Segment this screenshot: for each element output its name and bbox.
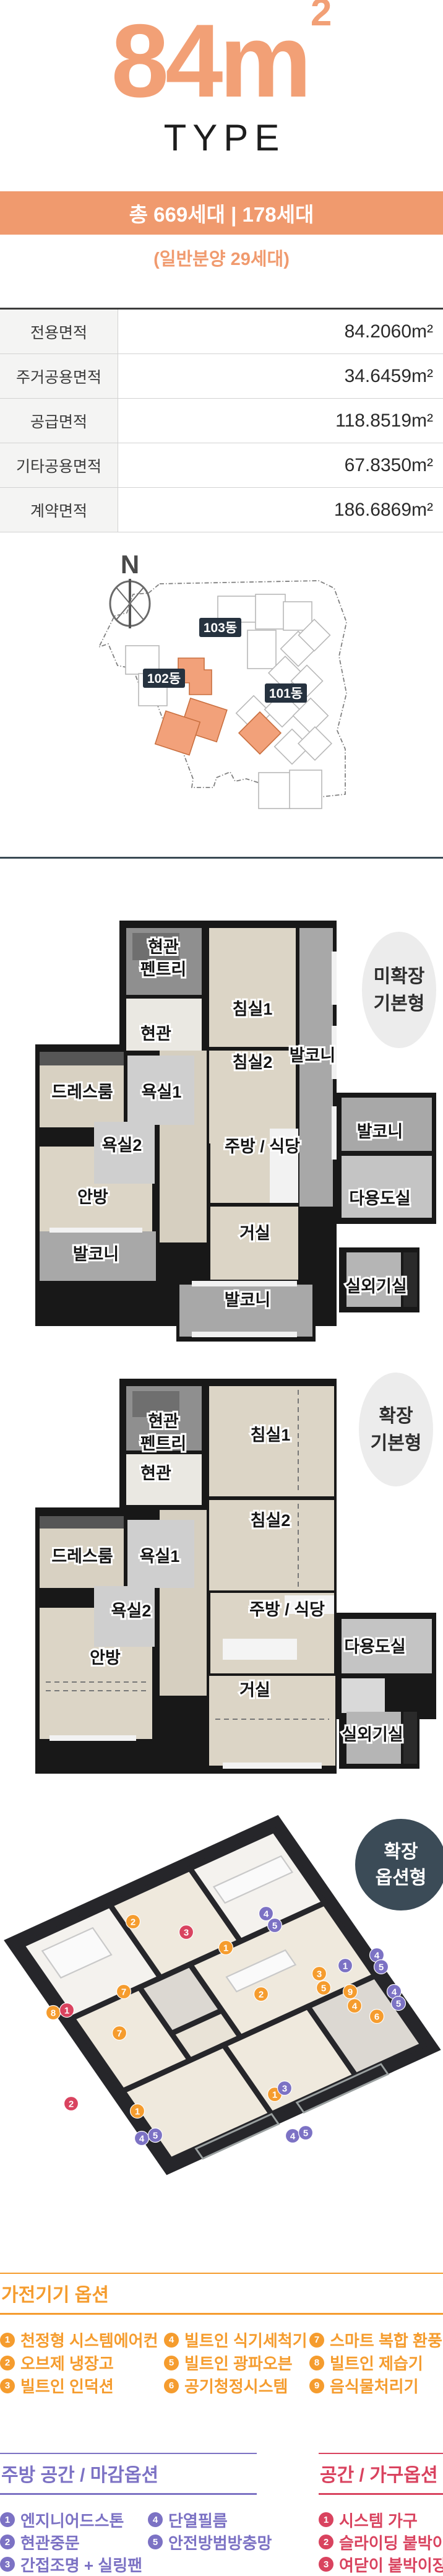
units-summary-text: 총 669세대 | 178세대 (129, 198, 314, 228)
room-label: 욕실1 (140, 1547, 180, 1566)
legend-item-label: 시스템 가구 (339, 2509, 418, 2531)
svg-text:4: 4 (374, 1951, 380, 1961)
option-marker-appliance: 3 (312, 1967, 327, 1981)
svg-text:101동: 101동 (269, 687, 303, 701)
room-label: 침실2 (251, 1511, 291, 1530)
svg-text:확장: 확장 (384, 1842, 418, 1862)
area-superscript: 2 (311, 0, 332, 34)
svg-text:4: 4 (392, 1987, 397, 1998)
option-marker-kitchen: 5 (392, 1997, 406, 2011)
svg-text:1: 1 (343, 1961, 348, 1972)
svg-text:5: 5 (272, 1921, 277, 1932)
room-label: 발코니 (290, 1046, 336, 1065)
room-label: 욕실1 (142, 1083, 182, 1101)
legend-item: 2현관중문 (0, 2531, 148, 2553)
area-row-value: 186.6869m² (118, 488, 443, 532)
area-table-row: 계약면적186.6869m² (0, 488, 443, 532)
legend-item-number: 3 (0, 2379, 15, 2393)
room-label: 펜트리 (140, 960, 187, 979)
legend-item-label: 음식물처리기 (330, 2374, 419, 2397)
legend-item: 5빌트인 광파오븐 (164, 2351, 309, 2374)
legend-item-number: 3 (319, 2557, 333, 2572)
legend-item-number: 2 (0, 2535, 15, 2549)
legend-item-number: 4 (148, 2512, 163, 2527)
legend-item-number: 1 (0, 2512, 15, 2527)
floorplan-expanded-option-3d: 확장 옵션형 2314513529445456781721134545 (0, 1806, 443, 2233)
legend-item: 3간접조명 + 실링팬 (0, 2553, 148, 2575)
legend-item-label: 빌트인 광파오븐 (184, 2351, 293, 2374)
room-label: 다용도실 (344, 1637, 405, 1656)
legend-item: 7스마트 복합 환풍기 (309, 2328, 443, 2351)
legend-item: 8빌트인 제습기 (309, 2351, 443, 2374)
option-marker-appliance: 7 (117, 1985, 131, 1999)
room-label: 침실1 (251, 1426, 291, 1444)
option-marker-kitchen: 4 (259, 1907, 273, 1921)
legend-item: 3여닫이 붙박이장 (319, 2553, 443, 2575)
floorplan-expanded-basic: 확장 기본형 현관펜트리현관침실1침실2드레스룸욕실1욕실2주방 / 식당안방다… (0, 1373, 443, 1806)
room-label: 안방 (90, 1649, 121, 1667)
room-label: 현관 (148, 1412, 179, 1431)
legend-item-label: 천정형 시스템에어컨 (20, 2328, 158, 2351)
svg-text:4: 4 (139, 2134, 145, 2144)
svg-text:미확장: 미확장 (374, 966, 425, 987)
svg-text:1: 1 (223, 1943, 228, 1954)
svg-text:1: 1 (272, 2090, 277, 2101)
legend-space-furniture-options: 공간 / 가구옵션1시스템 가구2슬라이딩 붙박이장3여닫이 붙박이장 (319, 2453, 443, 2575)
legend-item-number: 1 (319, 2512, 333, 2527)
svg-text:기본형: 기본형 (374, 994, 425, 1014)
option-marker-furniture: 3 (179, 1925, 194, 1940)
legend-item: 5안전방범방충망 (148, 2531, 272, 2553)
option-marker-appliance: 1 (131, 2104, 145, 2118)
room-label: 펜트리 (140, 1434, 187, 1453)
room-label: 현관 (148, 938, 179, 956)
room-label: 현관 (140, 1464, 171, 1483)
site-plan: N 103동102동101동 (0, 532, 443, 823)
legend-item-label: 빌트인 제습기 (330, 2351, 423, 2374)
legend-bottom-rule (0, 2313, 443, 2315)
area-table-row: 전용면적84.2060m² (0, 310, 443, 354)
svg-text:N: N (121, 550, 139, 579)
room-label: 침실1 (233, 1000, 273, 1018)
svg-text:5: 5 (396, 1999, 401, 2010)
legend-item-label: 엔지니어드스톤 (20, 2509, 124, 2531)
option-marker-kitchen: 4 (286, 2129, 300, 2143)
svg-text:7: 7 (117, 2029, 122, 2039)
legend-title: 공간 / 가구옵션 (319, 2454, 443, 2493)
building-103-footprint (218, 594, 330, 696)
type-label: TYPE (0, 119, 443, 157)
svg-text:4: 4 (290, 2131, 296, 2142)
legend-item: 1엔지니어드스톤 (0, 2509, 148, 2531)
option-marker-furniture: 1 (60, 2003, 74, 2018)
area-row-label: 계약면적 (0, 488, 118, 532)
area-table-row: 주거공용면적34.6459m² (0, 354, 443, 399)
legend-item-number: 9 (309, 2379, 324, 2393)
legend-item-number: 3 (0, 2557, 15, 2572)
svg-text:2: 2 (131, 1917, 135, 1928)
area-row-label: 주거공용면적 (0, 354, 118, 398)
type-header: 84m2 TYPE (0, 0, 443, 157)
room-label: 현관 (140, 1025, 171, 1043)
svg-text:5: 5 (321, 1984, 326, 1994)
room-label: 드레스룸 (51, 1547, 113, 1566)
svg-text:2: 2 (259, 1990, 264, 2000)
legend-item-label: 현관중문 (20, 2531, 80, 2554)
svg-text:3: 3 (184, 1928, 189, 1938)
room-label: 주방 / 식당 (225, 1137, 300, 1156)
legend-item: 2슬라이딩 붙박이장 (319, 2531, 443, 2553)
room-label: 다용도실 (349, 1189, 410, 1208)
legend-item: 4단열필름 (148, 2509, 272, 2531)
option-marker-kitchen: 5 (268, 1919, 282, 1933)
room-label: 욕실2 (111, 1602, 152, 1620)
units-summary-bar: 총 669세대 | 178세대 (0, 191, 443, 235)
legend-item-label: 빌트인 인덕션 (20, 2374, 114, 2397)
option-marker-appliance: 2 (254, 1987, 269, 2001)
svg-text:5: 5 (379, 1962, 384, 1973)
legend-item: 1천정형 시스템에어컨 (0, 2328, 164, 2351)
building-101-footprint (236, 692, 332, 809)
option-marker-kitchen: 1 (338, 1959, 353, 1973)
room-label: 안방 (77, 1188, 108, 1207)
legend-item-number: 5 (148, 2535, 163, 2549)
room-label: 발코니 (225, 1291, 271, 1309)
legend-title: 가전기기 옵션 (0, 2274, 443, 2313)
option-marker-kitchen: 4 (135, 2131, 149, 2146)
legend-item-label: 간접조명 + 실링팬 (20, 2553, 142, 2576)
legend-bottom-rule (0, 2493, 257, 2495)
legend-item: 3빌트인 인덕션 (0, 2374, 164, 2397)
legend-item-label: 단열필름 (168, 2509, 228, 2531)
area-unit: m (220, 2, 309, 119)
area-number: 84 (111, 2, 220, 119)
legend-item: 9음식물처리기 (309, 2374, 443, 2397)
area-row-label: 공급면적 (0, 399, 118, 443)
building-label: 101동 (265, 683, 307, 703)
room-label: 실외기실 (342, 1725, 403, 1744)
legend-item-label: 빌트인 식기세척기 (184, 2328, 308, 2351)
svg-text:1: 1 (64, 2006, 69, 2016)
svg-text:5: 5 (153, 2131, 158, 2141)
area-title: 84m2 (0, 0, 443, 110)
floorplan-unexpanded-basic: 미확장 기본형 현관펜트리현관침실1발코니침실2드레스룸욕실1욕실2주방 / 식… (0, 859, 443, 1373)
option-marker-kitchen: 5 (148, 2128, 163, 2143)
room-label: 침실2 (233, 1053, 273, 1072)
svg-text:6: 6 (374, 2012, 379, 2023)
svg-text:5: 5 (303, 2128, 308, 2139)
legend-title: 주방 공간 / 마감옵션 (0, 2454, 257, 2493)
room-label: 주방 / 식당 (249, 1600, 325, 1619)
option-marker-appliance: 6 (370, 2010, 384, 2024)
svg-text:확장: 확장 (379, 1406, 413, 1426)
legend-item-label: 스마트 복합 환풍기 (330, 2328, 443, 2351)
svg-text:8: 8 (51, 2008, 56, 2019)
legend-item: 6공기청정시스템 (164, 2374, 309, 2397)
legend-item-number: 2 (0, 2356, 15, 2370)
plan3-badge: 확장 옵션형 (355, 1819, 443, 1910)
option-marker-appliance: 8 (46, 2006, 61, 2020)
svg-text:3: 3 (317, 1969, 322, 1980)
option-marker-kitchen: 5 (299, 2126, 313, 2140)
option-marker-appliance: 7 (113, 2026, 127, 2040)
legend-item-label: 여닫이 붙박이장 (339, 2553, 443, 2576)
option-marker-appliance: 9 (343, 1985, 358, 1999)
legend-bottom-rule (319, 2493, 443, 2495)
area-table: 전용면적84.2060m²주거공용면적34.6459m²공급면적118.8519… (0, 308, 443, 532)
area-table-row: 공급면적118.8519m² (0, 399, 443, 443)
compass-icon: N (110, 550, 150, 628)
legend-item-label: 슬라이딩 붙박이장 (339, 2531, 443, 2554)
general-sale-note: (일반분양 29세대) (0, 245, 443, 271)
legend-appliance-options: 가전기기 옵션1천정형 시스템에어컨2오브제 냉장고3빌트인 인덕션4빌트인 식… (0, 2273, 443, 2397)
plan1-badge: 미확장 기본형 (362, 932, 436, 1048)
svg-text:기본형: 기본형 (371, 1433, 422, 1454)
area-table-row: 기타공용면적67.8350m² (0, 443, 443, 488)
legend-item-number: 4 (164, 2333, 179, 2348)
plan2-badge: 확장 기본형 (359, 1373, 433, 1486)
option-marker-kitchen: 3 (278, 2081, 292, 2096)
building-label: 102동 (143, 669, 185, 688)
room-label: 발코니 (73, 1245, 119, 1264)
room-label: 거실 (239, 1224, 270, 1242)
legend-item-number: 8 (309, 2356, 324, 2370)
legend-item: 1시스템 가구 (319, 2509, 443, 2531)
svg-text:103동: 103동 (204, 621, 237, 635)
room-label: 욕실2 (102, 1136, 142, 1155)
svg-text:4: 4 (352, 2001, 358, 2012)
legend-item-label: 오브제 냉장고 (20, 2351, 114, 2374)
svg-text:2: 2 (69, 2099, 74, 2110)
option-marker-kitchen: 5 (374, 1960, 389, 1974)
svg-text:3: 3 (282, 2084, 287, 2094)
legend-kitchen-finish-options: 주방 공간 / 마감옵션1엔지니어드스톤2현관중문3간접조명 + 실링팬4단열필… (0, 2453, 257, 2575)
building-label: 103동 (199, 618, 241, 637)
area-row-label: 전용면적 (0, 310, 118, 353)
area-row-value: 84.2060m² (118, 310, 443, 353)
svg-text:102동: 102동 (147, 672, 181, 686)
option-marker-appliance: 4 (348, 1999, 362, 2013)
legend-item-number: 1 (0, 2333, 15, 2348)
legend-item-number: 7 (309, 2333, 324, 2348)
legend-item-number: 6 (164, 2379, 179, 2393)
svg-text:4: 4 (264, 1909, 269, 1920)
room-label: 드레스룸 (51, 1083, 113, 1101)
room-label: 발코니 (357, 1122, 403, 1141)
area-row-value: 67.8350m² (118, 443, 443, 487)
option-marker-appliance: 1 (219, 1941, 233, 1955)
room-label: 실외기실 (345, 1277, 406, 1296)
legend-item-number: 2 (319, 2535, 333, 2549)
option-marker-furniture: 2 (64, 2097, 79, 2111)
legend-item-label: 안전방범방충망 (168, 2531, 272, 2554)
svg-text:1: 1 (135, 2107, 140, 2117)
area-row-value: 34.6459m² (118, 354, 443, 398)
area-row-value: 118.8519m² (118, 399, 443, 443)
legend-item: 4빌트인 식기세척기 (164, 2328, 309, 2351)
area-row-label: 기타공용면적 (0, 443, 118, 487)
legend-item: 2오브제 냉장고 (0, 2351, 164, 2374)
svg-text:9: 9 (348, 1987, 353, 1998)
legend-item-label: 공기청정시스템 (184, 2374, 288, 2397)
legend-item-number: 5 (164, 2356, 179, 2370)
room-label: 거실 (239, 1681, 270, 1699)
option-marker-appliance: 2 (126, 1915, 140, 1929)
option-marker-appliance: 5 (317, 1981, 331, 1995)
svg-text:7: 7 (121, 1987, 126, 1998)
svg-text:옵션형: 옵션형 (376, 1868, 427, 1888)
